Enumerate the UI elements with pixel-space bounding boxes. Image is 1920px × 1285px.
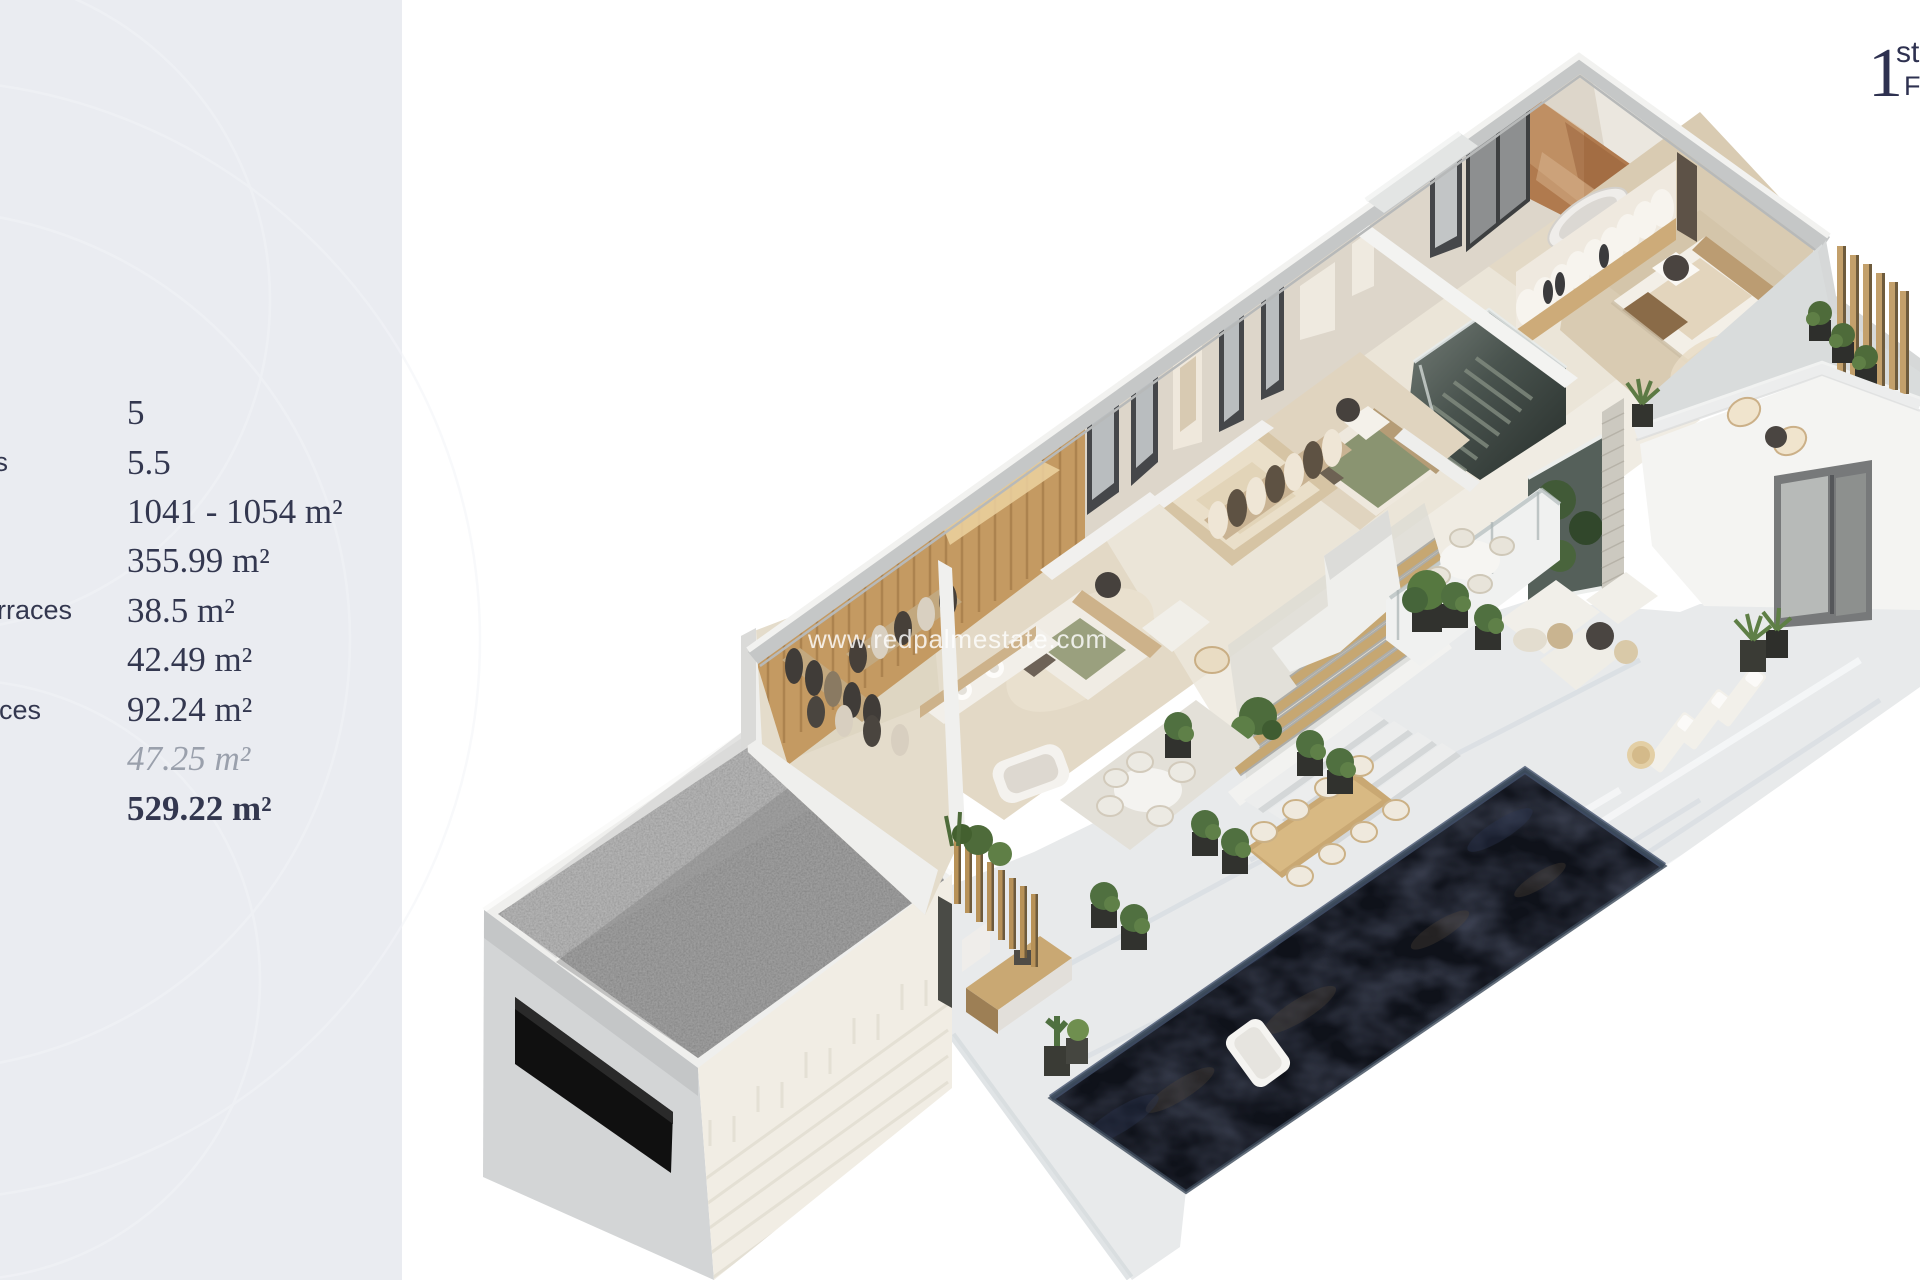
svg-text:aces: aces [0, 695, 41, 725]
svg-text:www.redpalmestate.com: www.redpalmestate.com [807, 624, 1108, 654]
svg-text:st: st [1896, 36, 1920, 69]
svg-text:5: 5 [127, 393, 145, 432]
svg-text:355.99 m²: 355.99 m² [127, 541, 270, 580]
svg-text:42.49 m²: 42.49 m² [127, 640, 252, 679]
svg-text:s: s [0, 447, 8, 477]
svg-text:38.5 m²: 38.5 m² [127, 591, 235, 630]
svg-text:92.24 m²: 92.24 m² [127, 690, 252, 729]
svg-text:Floor: Floor [1904, 71, 1920, 101]
svg-text:529.22 m²: 529.22 m² [127, 789, 272, 828]
svg-text:5.5: 5.5 [127, 443, 171, 482]
svg-text:47.25 m²: 47.25 m² [127, 739, 251, 778]
svg-text:1041 - 1054 m²: 1041 - 1054 m² [127, 492, 343, 531]
svg-text:erraces: erraces [0, 595, 72, 625]
